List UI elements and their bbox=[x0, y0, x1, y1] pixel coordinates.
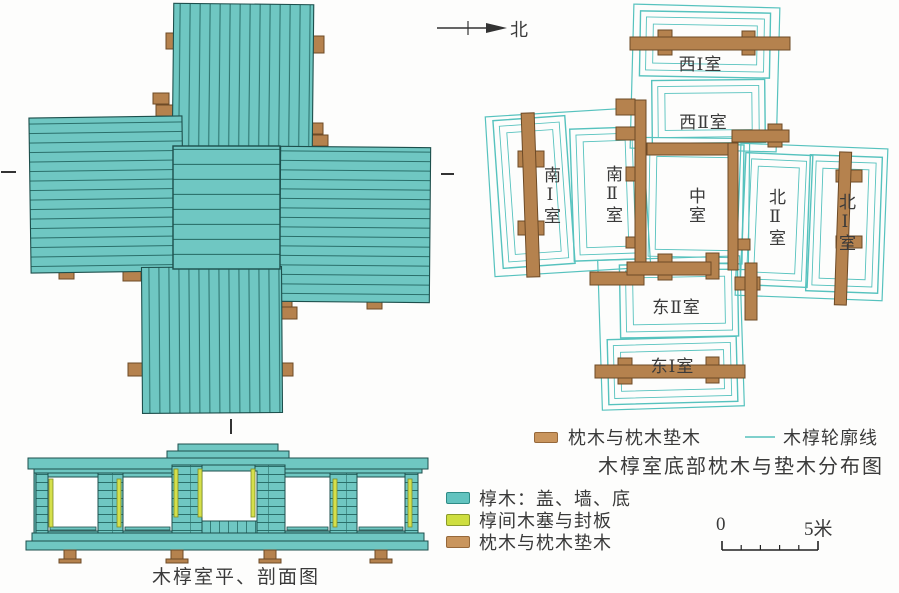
section-bottom-plank2 bbox=[26, 541, 428, 550]
section-center-cap-top bbox=[178, 444, 278, 451]
section-line-marker-bottom bbox=[230, 419, 232, 434]
plan-arm-left bbox=[29, 116, 184, 273]
scale-end-label: 5米 bbox=[804, 514, 833, 541]
legend-item-sleeper-wood: 枕木与枕木垫木 bbox=[446, 531, 631, 553]
section-bottom-plank1 bbox=[32, 533, 424, 541]
legend-item-plug-board: 椁间木塞与封板 bbox=[446, 509, 631, 531]
section-center-floor bbox=[202, 521, 257, 533]
plug-board-swatch-icon bbox=[446, 514, 470, 526]
room-label-west2: 西Ⅱ室 bbox=[666, 108, 741, 133]
outline-line-icon bbox=[745, 436, 775, 438]
room-label-east1: 东Ⅰ室 bbox=[635, 352, 710, 377]
room-label-west1: 西Ⅰ室 bbox=[663, 50, 738, 75]
scale-bar: 0 5米 bbox=[708, 514, 858, 560]
section-caption: 木椁室平、剖面图 bbox=[152, 562, 320, 589]
plan-arm-bottom bbox=[141, 267, 282, 414]
scale-start-label: 0 bbox=[716, 514, 726, 536]
section-line-marker-left bbox=[1, 171, 16, 173]
room-label-center: 中室 bbox=[683, 174, 708, 238]
dist-legend-sleeper: 枕木与枕木垫木 bbox=[534, 424, 701, 450]
chamber-section-drawing bbox=[22, 443, 434, 567]
legend-item-chamber-wood: 椁木：盖、墙、底 bbox=[446, 487, 631, 509]
dist-legend-outline: 木椁轮廓线 bbox=[745, 424, 878, 450]
room-label-north2: 北Ⅱ室 bbox=[763, 178, 788, 258]
plan-arm-top bbox=[172, 3, 314, 153]
room-label-south1: 南Ⅰ室 bbox=[538, 156, 563, 236]
figure-canvas: 北 bbox=[0, 0, 899, 593]
plan-cover-planks bbox=[29, 3, 431, 413]
main-legend: 椁木：盖、墙、底 椁间木塞与封板 枕木与枕木垫木 bbox=[446, 487, 631, 553]
legend-label-sleeper-wood: 枕木与枕木垫木 bbox=[479, 529, 612, 555]
scale-bar-ruler bbox=[708, 538, 858, 554]
dist-title: 木椁室底部枕木与垫木分布图 bbox=[598, 450, 884, 479]
dist-legend-sleeper-label: 枕木与枕木垫木 bbox=[568, 424, 701, 450]
sleeper-swatch-icon bbox=[534, 432, 558, 443]
chamber-plan-drawing bbox=[0, 0, 460, 440]
room-label-north1: 北Ⅰ室 bbox=[833, 183, 858, 263]
plan-arm-right bbox=[279, 146, 430, 302]
dist-legend-outline-label: 木椁轮廓线 bbox=[783, 424, 878, 450]
room-label-south2: 南Ⅱ室 bbox=[600, 155, 625, 235]
plan-center-block bbox=[173, 146, 280, 269]
section-line-marker-right bbox=[441, 173, 454, 175]
sleeper-wood-swatch-icon bbox=[446, 536, 470, 548]
chamber-wood-swatch-icon bbox=[446, 492, 470, 504]
room-label-east2: 东Ⅱ室 bbox=[639, 293, 714, 318]
